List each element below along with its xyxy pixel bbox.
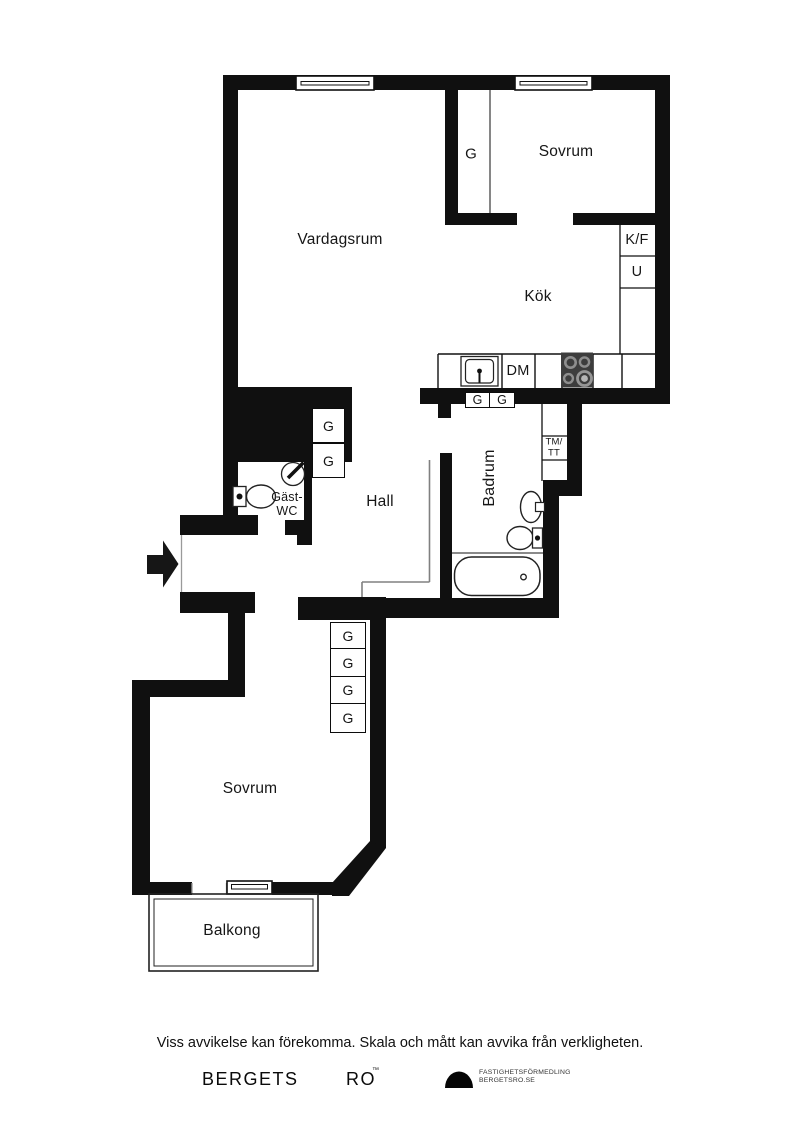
walls [132,75,670,896]
window-icon [296,76,374,90]
wall [438,404,451,418]
window-icon [227,881,272,894]
closet-letter: G [473,393,483,407]
closet-letter: G [343,655,354,671]
entry-arrow-icon [147,541,179,588]
room-label-kok: Kök [524,288,551,306]
wall [382,598,558,618]
closet-box-stack-4: G [330,703,366,733]
disclaimer-text: Viss avvikelse kan förekomma. Skala och … [0,1035,800,1051]
wall [573,213,655,225]
wall [223,75,670,90]
closet-letter: G [343,682,354,698]
wall [132,882,192,895]
balcony-door-threshold [192,883,227,894]
wall [223,75,238,535]
closet-letter: G [497,393,507,407]
closet-letter: G [323,418,334,434]
windows [227,76,592,894]
wall [445,213,517,225]
brand-logo-text: FASTIGHETSFÖRMEDLING BERGETSRO.SE [479,1069,571,1085]
wall [543,494,559,618]
bathroom-sink-icon [521,492,545,523]
floor-plan-svg [0,0,800,1131]
oven-label: U [632,264,643,280]
room-label-vardagsrum: Vardagsrum [297,231,382,249]
closet-box-stack-1: G [330,622,366,649]
washer-line2: TT [546,448,563,459]
closet-box-stack-2: G [330,648,366,677]
closet-box-stack-3: G [330,676,366,704]
room-label-sovrum-upper: Sovrum [539,143,594,161]
fridge-freezer-label: K/F [625,232,648,248]
wall [180,515,258,535]
gast-wc-line1: Gäst- [271,490,303,504]
kitchen-sink-icon [461,357,498,387]
wall [543,480,582,496]
wall [370,597,386,848]
stove-icon [561,353,593,388]
closet-box-kitchen-2: G [489,392,515,408]
closet-box-hall-2: G [312,443,345,478]
guest-wc-toilet-icon [233,485,276,508]
logo-line1: FASTIGHETSFÖRMEDLING [479,1069,571,1077]
closet-letter: G [343,710,354,726]
brand-word-bergets: BERGETS [202,1069,299,1090]
room-label-badrum: Badrum [481,449,499,506]
washer-line1: TM/ [546,438,563,449]
room-label-hall: Hall [366,493,394,511]
wall [440,453,452,598]
wall [180,592,255,613]
wall [132,680,150,895]
closet-letter: G [343,628,354,644]
logo-line2: BERGETSRO.SE [479,1077,571,1085]
window-icon [515,76,592,90]
wall [285,520,312,535]
washer-dryer-label: TM/ TT [546,438,563,459]
bathroom-toilet-icon [507,527,543,550]
wall [272,882,334,895]
wall-chamfer [332,841,386,896]
closet-box-hall-1: G [312,408,345,443]
dishwasher-label: DM [507,363,530,379]
bathtub-icon [455,557,541,596]
brand-trademark: ™ [372,1067,379,1074]
wall [655,75,670,404]
closet-label-sovrum: G [465,146,477,163]
room-label-balkong: Balkong [203,922,260,940]
hall-boundary-line [362,460,430,597]
floor-plan-page: Vardagsrum Sovrum Kök Hall Badrum Sovrum… [0,0,800,1131]
closet-letter: G [323,453,334,469]
wall [420,388,670,404]
room-label-gast-wc: Gäst- WC [271,490,303,518]
room-label-sovrum-lower: Sovrum [223,780,278,798]
wall [445,88,458,225]
brand-dome-icon [445,1072,473,1089]
gast-wc-line2: WC [271,504,303,518]
closet-box-kitchen-1: G [465,392,490,408]
guest-wc-sink-icon [282,463,305,486]
